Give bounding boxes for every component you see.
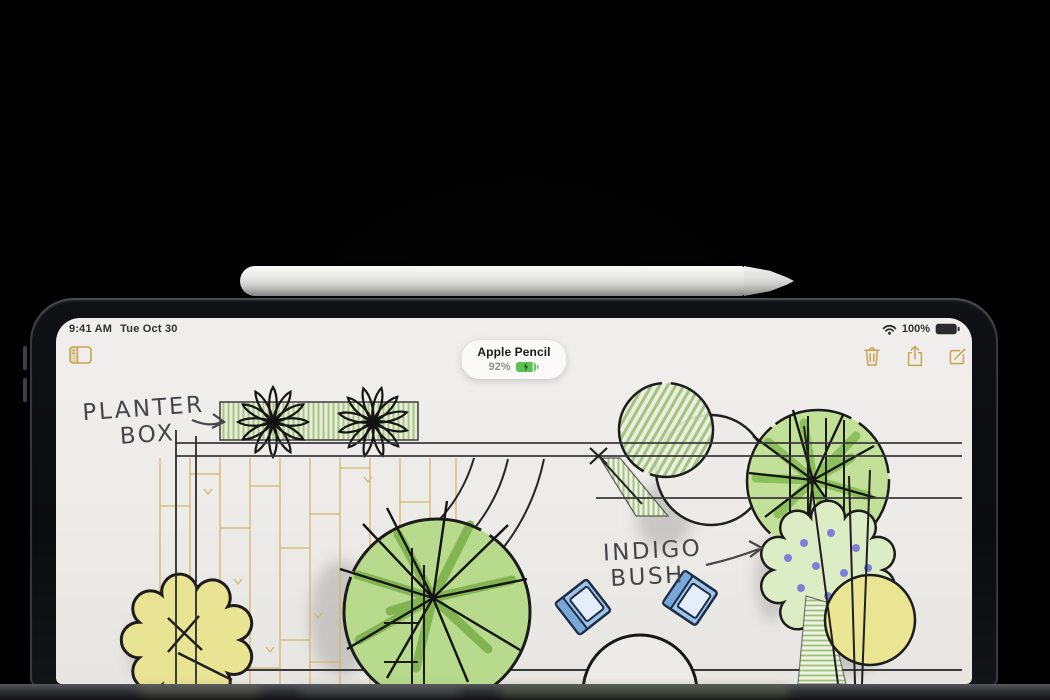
planter-box-label: PLANTER BOX xyxy=(82,392,224,450)
planter-box-sketch xyxy=(220,380,418,465)
table-reflection xyxy=(500,686,790,695)
battery-icon xyxy=(935,323,960,335)
status-date: Tue Oct 30 xyxy=(120,323,177,335)
table-reflection xyxy=(300,686,460,695)
status-bar: 9:41 AMTue Oct 30 100% xyxy=(56,321,972,339)
ipad-device: PLANTER BOX INDIGO BUSH 9:41 AMTue Oct 3… xyxy=(30,298,998,688)
wifi-icon xyxy=(882,324,897,335)
svg-text:PLANTER: PLANTER xyxy=(82,392,206,426)
battery-percent: 100% xyxy=(902,323,930,335)
yellow-bush-sketch xyxy=(121,574,251,684)
keynote-photo-stage: PLANTER BOX INDIGO BUSH 9:41 AMTue Oct 3… xyxy=(0,0,1050,700)
svg-text:INDIGO: INDIGO xyxy=(602,535,703,566)
pencil-battery-charging-icon xyxy=(516,361,540,373)
sidebar-toggle-button[interactable] xyxy=(69,346,92,369)
compose-button[interactable] xyxy=(947,346,968,372)
round-table-sketch xyxy=(583,635,697,684)
svg-text:BOX: BOX xyxy=(119,420,176,450)
indigo-bush-label: INDIGO BUSH xyxy=(602,535,762,592)
trash-button[interactable] xyxy=(862,345,882,372)
table-reflection xyxy=(140,686,260,695)
status-time: 9:41 AM xyxy=(69,323,112,335)
yellow-bush-right-sketch xyxy=(825,575,915,665)
chair-sketch xyxy=(555,579,611,635)
volume-up-button xyxy=(23,346,27,370)
svg-text:BUSH: BUSH xyxy=(610,562,686,592)
apple-pencil-tip xyxy=(744,266,794,296)
pencil-pairing-banner[interactable]: Apple Pencil 92% xyxy=(461,340,566,379)
pencil-battery-percent: 92% xyxy=(488,361,510,373)
big-tree-sketch xyxy=(340,501,530,684)
volume-down-button xyxy=(23,378,27,402)
arrow-icon xyxy=(706,541,762,565)
hatched-bush-sketch xyxy=(619,383,713,477)
ipad-screen: PLANTER BOX INDIGO BUSH 9:41 AMTue Oct 3… xyxy=(56,318,972,684)
share-button[interactable] xyxy=(905,344,925,373)
apple-pencil xyxy=(240,266,745,296)
pencil-banner-title: Apple Pencil xyxy=(477,345,550,359)
